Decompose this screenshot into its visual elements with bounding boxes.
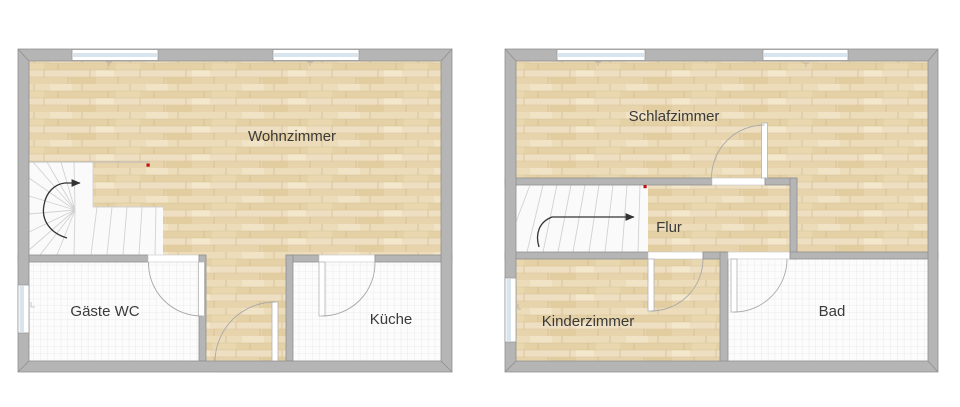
wall-flur-bottom-left bbox=[505, 252, 648, 259]
stair-run bbox=[516, 185, 648, 252]
kinderzimmer-label: Kinderzimmer bbox=[542, 313, 635, 330]
kinderzimmer-door-leaf bbox=[648, 259, 654, 311]
wohnzimmer-label: Wohnzimmer bbox=[248, 128, 336, 145]
wall-flur-top-left bbox=[505, 178, 712, 185]
kueche-door-leaf bbox=[319, 262, 325, 316]
bad-label: Bad bbox=[819, 303, 846, 320]
wall-kinderzimmer-bad bbox=[720, 252, 728, 362]
window-top-right-glass bbox=[764, 53, 847, 57]
stair-run-horizontal bbox=[93, 207, 163, 255]
window-left-wall-glass bbox=[20, 286, 25, 332]
kueche-label: Küche bbox=[370, 311, 413, 328]
kueche-floor bbox=[293, 262, 441, 361]
window-top-left-glass bbox=[73, 53, 157, 57]
gaeste-wc-door-opening bbox=[148, 255, 199, 262]
flur-label: Flur bbox=[656, 219, 682, 236]
gaeste-wc-label: Gäste WC bbox=[70, 303, 139, 320]
kueche-door-opening bbox=[319, 255, 375, 262]
ground-floor-plan: Wohnzimmer Gäste WC Küche bbox=[18, 49, 452, 372]
wall-kueche-left bbox=[286, 255, 293, 361]
wall-flur-right bbox=[790, 178, 797, 259]
red-marker-dot bbox=[147, 164, 150, 167]
schlafzimmer-label: Schlafzimmer bbox=[629, 108, 720, 125]
floorplan-drawing: Wohnzimmer Gäste WC Küche bbox=[0, 0, 960, 407]
wall-kueche-top-right bbox=[375, 255, 452, 262]
schlafzimmer-door-opening bbox=[712, 178, 765, 185]
staircase-upper-floor bbox=[516, 185, 648, 252]
wall-bad-top bbox=[790, 252, 938, 259]
kinderzimmer-floor bbox=[516, 259, 720, 361]
window-top-right-glass bbox=[274, 53, 358, 57]
floorplan-canvas: Wohnzimmer Gäste WC Küche bbox=[0, 0, 960, 407]
bad-door-opening bbox=[728, 252, 790, 259]
stair-run-vertical bbox=[29, 162, 93, 255]
schlafzimmer-door-leaf bbox=[762, 123, 768, 178]
bad-door-leaf bbox=[731, 259, 737, 312]
window-left-wall-glass bbox=[507, 279, 512, 341]
schlafzimmer-floor-right bbox=[797, 178, 928, 252]
wall-gaeste-wc-top bbox=[18, 255, 148, 262]
red-marker-dot bbox=[644, 185, 647, 188]
schlafzimmer-floor bbox=[516, 61, 928, 178]
kinderzimmer-door-opening bbox=[648, 252, 703, 259]
window-top-left-glass bbox=[558, 53, 644, 57]
entry-door-leaf bbox=[272, 302, 278, 362]
upper-floor-plan: Schlafzimmer Flur Kinderzimmer Bad bbox=[505, 49, 938, 372]
gaeste-wc-door-leaf bbox=[199, 262, 205, 316]
